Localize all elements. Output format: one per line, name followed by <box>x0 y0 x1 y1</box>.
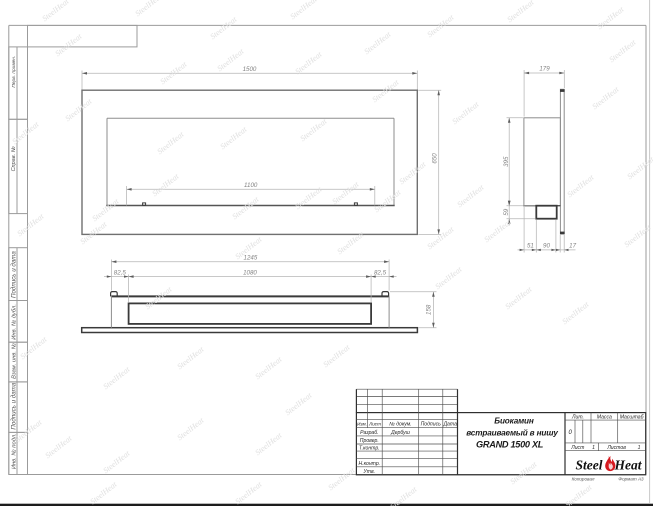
svg-text:Т.контр.: Т.контр. <box>359 446 380 452</box>
svg-text:1: 1 <box>592 445 595 451</box>
svg-text:Копировал: Копировал <box>572 477 595 482</box>
svg-text:Изм.: Изм. <box>357 422 367 427</box>
svg-text:Подпись и дата: Подпись и дата <box>10 382 17 429</box>
svg-text:GRAND 1500 XL: GRAND 1500 XL <box>476 440 544 450</box>
svg-text:Перв. примен.: Перв. примен. <box>11 56 17 88</box>
svg-text:Масштаб: Масштаб <box>620 414 645 420</box>
svg-text:Масса: Масса <box>597 414 612 420</box>
svg-text:Разраб.: Разраб. <box>360 430 378 436</box>
svg-text:Лист: Лист <box>368 422 381 427</box>
svg-text:Биокамин: Биокамин <box>494 416 534 425</box>
svg-text:Дербуш: Дербуш <box>390 430 411 436</box>
svg-text:17: 17 <box>569 243 576 250</box>
svg-text:Утв.: Утв. <box>364 469 376 475</box>
svg-text:51: 51 <box>527 243 534 250</box>
svg-text:1080: 1080 <box>243 270 257 277</box>
svg-text:82,5: 82,5 <box>374 269 387 276</box>
svg-text:90: 90 <box>543 243 550 250</box>
svg-text:Инв. № дубл.: Инв. № дубл. <box>11 304 17 340</box>
svg-text:179: 179 <box>539 66 550 73</box>
svg-text:82,5: 82,5 <box>114 269 127 276</box>
svg-text:Дата: Дата <box>442 422 457 428</box>
svg-text:1100: 1100 <box>244 182 258 189</box>
svg-text:№ докум.: № докум. <box>389 422 411 428</box>
svg-text:650: 650 <box>432 153 439 164</box>
svg-text:Провер.: Провер. <box>360 438 379 444</box>
svg-text:Взам. инв. №: Взам. инв. № <box>11 343 17 379</box>
svg-text:1500: 1500 <box>243 66 257 73</box>
svg-text:Формат А3: Формат А3 <box>618 477 644 482</box>
svg-text:Справ. №: Справ. № <box>11 146 17 171</box>
svg-text:Heat: Heat <box>614 458 643 473</box>
svg-text:Steel: Steel <box>576 458 603 473</box>
svg-text:встраиваемый в нишу: встраиваемый в нишу <box>466 428 558 437</box>
svg-text:Лит.: Лит. <box>571 414 584 420</box>
svg-text:158: 158 <box>426 304 433 315</box>
svg-text:59: 59 <box>503 208 510 215</box>
svg-text:395: 395 <box>503 156 510 167</box>
svg-text:Листов: Листов <box>606 445 626 451</box>
svg-text:Подпись и дата: Подпись и дата <box>10 251 17 298</box>
svg-text:Подпись: Подпись <box>421 422 442 428</box>
svg-text:Н.контр.: Н.контр. <box>359 461 381 467</box>
svg-text:1: 1 <box>638 445 641 451</box>
svg-text:Лист: Лист <box>570 445 584 451</box>
